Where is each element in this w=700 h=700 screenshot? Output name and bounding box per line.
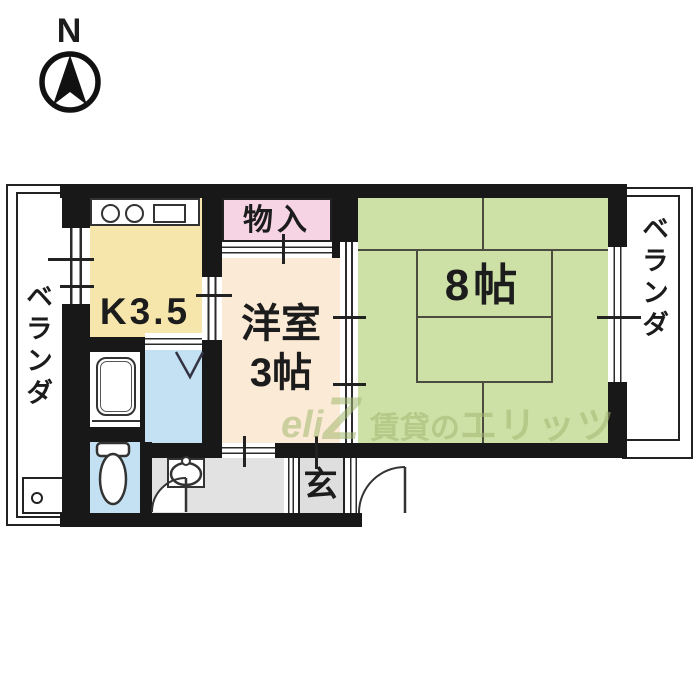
floor-plan: N ベランダ ベランダ	[0, 0, 700, 700]
wall-left-upper	[62, 184, 90, 228]
wall-washroom-south	[140, 443, 222, 458]
door-westernroom-hall	[222, 443, 275, 458]
door-kitchen-washroom	[145, 333, 202, 350]
watermark-logo-script: eli	[281, 406, 323, 444]
hall-door-tick	[243, 436, 246, 467]
wall-right-upper	[608, 184, 627, 247]
closet-door-tick	[282, 234, 285, 264]
kitchen-sink-icon	[153, 204, 186, 223]
watermark: eli Z 賃貸の エリッツ	[281, 388, 616, 444]
washroom-floor	[145, 350, 202, 443]
door-closet	[222, 242, 332, 258]
door-swing-front-entrance	[359, 467, 405, 513]
western-room-label-line1: 洋室	[222, 303, 340, 345]
toilet-room-floor	[90, 442, 140, 513]
window-tick	[48, 258, 94, 261]
window-right	[608, 247, 627, 382]
tatami-room-label: 8帖	[408, 263, 558, 309]
wall-bath-south	[90, 427, 140, 442]
closet-label: 物入	[222, 205, 332, 237]
tatami-line	[482, 198, 484, 251]
veranda-right-label: ベランダ	[634, 214, 673, 404]
wall-bottom	[60, 513, 362, 527]
kitchen-counter	[90, 198, 200, 226]
wall-kitchen-east-lower	[202, 340, 222, 458]
watermark-logo-letter: Z	[323, 393, 360, 444]
window-tick	[60, 285, 94, 288]
window-left	[62, 228, 90, 304]
bathtub-deck-line	[92, 420, 140, 422]
veranda-left-label: ベランダ	[18, 282, 57, 472]
kitchen-label: K3.5	[88, 293, 202, 332]
compass-icon	[36, 48, 104, 116]
entrance-step-right	[345, 458, 362, 513]
door-kitchen-westernroom	[202, 277, 222, 340]
entrance-step-left	[284, 458, 298, 513]
stove-burner-icon	[101, 204, 120, 223]
wall-kitchen-east-upper	[202, 198, 222, 277]
wall-bath-divider	[140, 350, 145, 443]
watermark-brand-prefix: 賃貸の	[370, 414, 460, 444]
stove-burner-icon	[125, 204, 144, 223]
tatami-line	[416, 381, 553, 383]
compass-north-label: N	[47, 12, 91, 51]
wall-kitchen-south	[62, 337, 145, 352]
tatami-line	[416, 316, 553, 318]
watermark-brand-name: エリッツ	[460, 407, 616, 444]
wall-toilet-east	[140, 442, 152, 513]
entrance-label: 玄	[298, 468, 343, 504]
wall-closet-east	[332, 184, 358, 242]
bathtub-icon	[96, 357, 136, 416]
